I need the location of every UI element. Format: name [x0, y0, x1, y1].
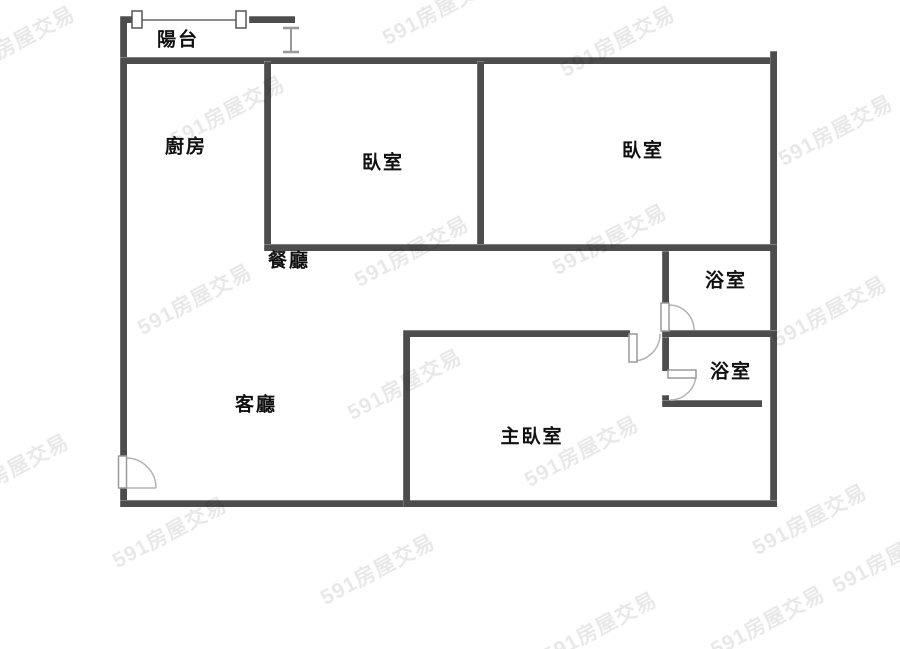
master-bedroom-door-icon [629, 334, 660, 362]
room-label-bathroom-2: 浴室 [710, 363, 752, 382]
room-label-living-room: 客廳 [235, 396, 277, 415]
balcony-side-window-icon [283, 28, 299, 52]
entry-door-icon [119, 456, 157, 488]
floor-plan: 陽台 廚房 臥室 臥室 餐廳 浴室 浴室 客廳 主臥室 591房屋交易 591房… [0, 0, 900, 649]
plan-symbols [0, 0, 900, 649]
room-label-balcony: 陽台 [157, 31, 199, 50]
balcony-window-icon [132, 11, 246, 28]
room-label-dining-room: 餐廳 [268, 252, 310, 271]
room-label-kitchen: 廚房 [165, 138, 207, 157]
room-label-bathroom-1: 浴室 [705, 272, 747, 291]
bathroom2-door-icon [668, 370, 696, 400]
room-label-master-bedroom: 主臥室 [500, 428, 563, 447]
room-label-bedroom-2: 臥室 [622, 142, 664, 161]
room-label-bedroom-1: 臥室 [362, 154, 404, 173]
bathroom1-door-icon [661, 303, 694, 331]
